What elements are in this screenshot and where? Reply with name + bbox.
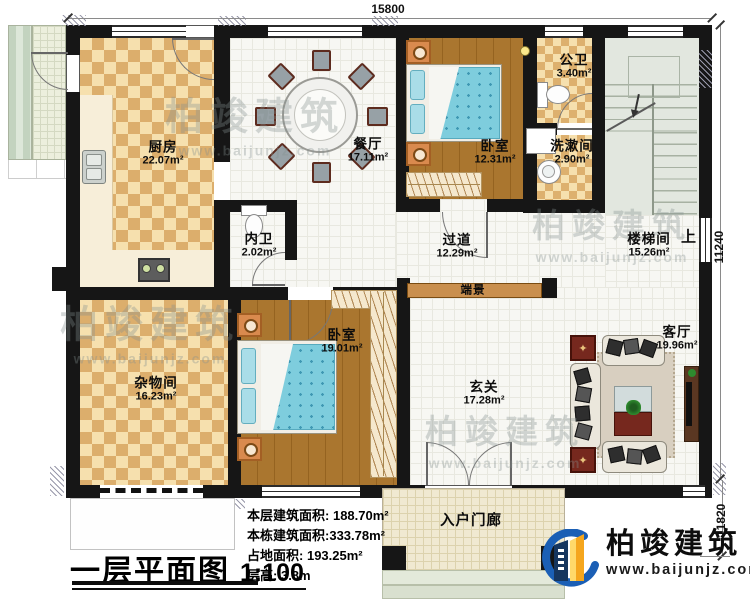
room-label-living: 客厅19.96m²: [657, 324, 698, 351]
wall-lamp-icon: [520, 46, 530, 56]
door-leaf: [289, 300, 291, 345]
stat-floor-area: 本层建筑面积: 188.70m²: [247, 506, 389, 526]
kitchen-sink-basin: [86, 154, 102, 166]
coffee-table: [614, 412, 652, 436]
dimension-right-lower: 1820: [714, 504, 728, 531]
brand-logo: 柏竣建筑 www.baijunjz.com: [538, 529, 750, 591]
wall: [699, 262, 712, 498]
label-console: 端景: [461, 285, 486, 298]
door-leaf: [31, 52, 68, 54]
nightstand: [406, 40, 431, 64]
window: [628, 25, 683, 38]
room-label-inner-bath: 内卫2.02m²: [242, 231, 277, 258]
watermark: 柏竣建筑 www.baijunjz.com: [165, 86, 345, 159]
storage-dashed-opening: [100, 488, 203, 493]
plant-icon: [626, 400, 641, 415]
dining-chair: [312, 50, 331, 71]
stat-floor-height: 层高: 3.8m: [247, 566, 389, 586]
door-opening: [186, 25, 214, 38]
side-porch-step: [8, 160, 66, 179]
plant-icon: [688, 369, 696, 377]
wall-bedroom-foyer: [397, 278, 410, 485]
room-label-corridor: 过道12.29m²: [437, 232, 478, 259]
window: [545, 25, 583, 38]
sofa-pillow: [623, 338, 640, 355]
title-underline-thick: [72, 581, 258, 585]
watermark: 柏竣建筑 www.baijunjz.com: [60, 294, 240, 367]
kitchen-sink-basin: [86, 168, 102, 180]
room-label-storage: 杂物间16.23m²: [134, 375, 178, 402]
sofa-pillow: [608, 446, 626, 464]
window: [262, 485, 360, 498]
window: [683, 485, 705, 498]
dining-chair: [367, 107, 388, 126]
wall: [583, 25, 628, 38]
side-porch-floor: [32, 25, 66, 160]
brand-url: www.baijunjz.com: [606, 562, 750, 578]
pillow: [410, 104, 425, 134]
stat-land-area: 占地面积: 193.25m²: [247, 546, 389, 566]
nightstand: [406, 142, 431, 166]
toilet-icon: [546, 85, 570, 104]
title-underline-thin: [72, 588, 306, 590]
floor-plan: ✦ ✦ 柏竣建筑 www.baijunjz.com 柏竣建筑 www.baiju…: [0, 0, 750, 601]
brand-logo-icon: [538, 529, 600, 591]
room-label-stairwell: 楼梯间15.26m²: [627, 231, 671, 258]
dining-chair: [312, 162, 331, 183]
pedestal-sink-inner: [542, 165, 555, 178]
wall: [214, 212, 230, 287]
stat-building-area: 本栋建筑面积:333.78m²: [247, 526, 389, 546]
door-leaf: [486, 212, 488, 258]
sofa-pillow: [626, 448, 642, 464]
window: [268, 25, 362, 38]
room-label-washroom: 洗漱间2.90m²: [550, 138, 594, 165]
watermark: 柏竣建筑 www.baijunjz.com: [425, 405, 585, 471]
pillow: [410, 70, 425, 100]
wall: [362, 25, 545, 38]
room-label-foyer: 玄关17.28m²: [464, 379, 505, 406]
wall: [66, 485, 100, 498]
storage-stoop: [70, 498, 235, 550]
window: [699, 218, 712, 262]
room-label-bedroom-top: 卧室12.31m²: [475, 138, 516, 165]
side-porch-stripes: [8, 25, 32, 160]
wall: [396, 199, 440, 212]
wall: [285, 212, 297, 260]
tv-icon: [686, 382, 692, 426]
room-label-kitchen: 厨房22.07m²: [143, 139, 184, 166]
brand-name: 柏竣建筑: [606, 529, 750, 559]
wall: [66, 25, 80, 55]
wall-stub: [542, 278, 557, 298]
pillow: [241, 388, 256, 424]
dimension-line-top: [68, 18, 712, 19]
pillow: [241, 348, 256, 384]
door-leaf: [252, 284, 285, 286]
door-leaf: [172, 38, 214, 40]
stove-burner: [142, 264, 151, 273]
wall-bath-stair: [592, 38, 605, 213]
side-table: ✦: [570, 335, 596, 361]
stair-guide-box: [628, 56, 680, 98]
door-opening: [66, 55, 80, 92]
stair-arrow-head: [629, 109, 638, 118]
dimension-right-upper: 11240: [712, 231, 726, 264]
window: [112, 25, 186, 38]
closet: [331, 290, 371, 309]
stove-burner: [156, 264, 165, 273]
label-up: 上: [681, 230, 697, 247]
room-label-dining: 餐厅17.11m²: [348, 136, 388, 163]
nightstand: [237, 313, 262, 337]
wardrobe-rail: [383, 292, 384, 476]
nightstand: [237, 437, 262, 461]
label-entry-porch: 入户门廊: [440, 513, 502, 529]
sofa-pillow: [575, 386, 592, 403]
area-stats: 本层建筑面积: 188.70m² 本栋建筑面积:333.78m² 占地面积: 1…: [247, 506, 389, 586]
hatch-mark: [699, 50, 712, 88]
wall: [214, 25, 268, 38]
wall: [203, 485, 262, 498]
dimension-top: 15800: [371, 2, 404, 16]
room-label-bedroom-bottom: 卧室19.01m²: [322, 327, 363, 354]
room-label-public-bath: 公卫3.40m²: [557, 52, 592, 79]
door-leaf: [557, 128, 592, 130]
hatch-mark: [50, 466, 64, 496]
wardrobe-rail: [408, 184, 480, 185]
